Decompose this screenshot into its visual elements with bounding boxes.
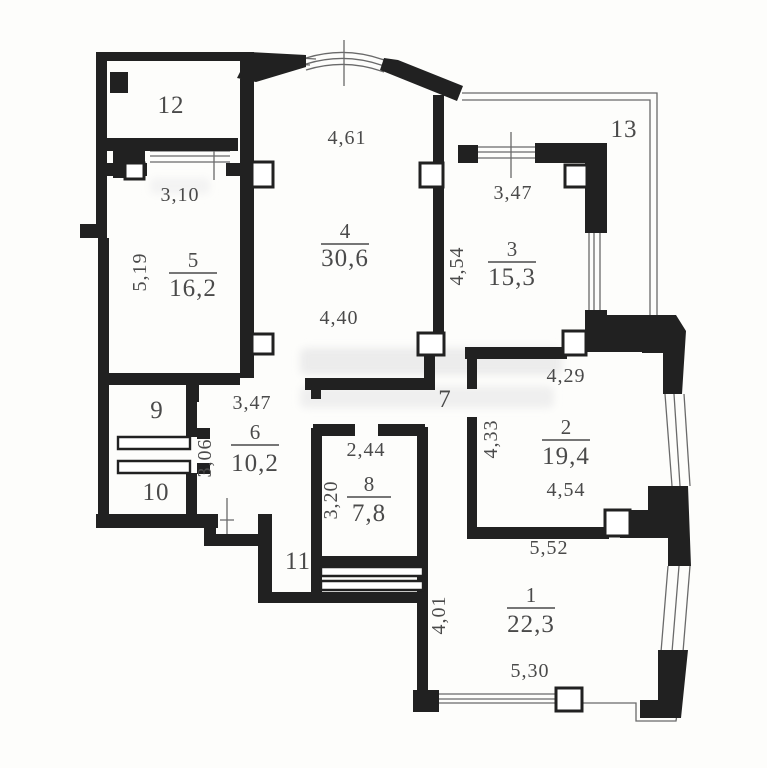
walls-path (80, 52, 691, 718)
room-8-area: 7,8 (352, 500, 386, 527)
room-4-number: 4 (340, 219, 351, 243)
dim-4-01: 4,01 (428, 596, 450, 635)
room-6-area: 10,2 (231, 450, 279, 477)
room-11-label: 11 (285, 548, 311, 575)
room-4-area: 30,6 (321, 245, 369, 272)
scanned-floor-plan-page: 4 30,6 5 16,2 3 15,3 2 19,4 1 22,3 6 10,… (0, 0, 767, 768)
room-6-number: 6 (250, 420, 261, 444)
dim-4-29: 4,29 (547, 365, 586, 387)
floor-plan-drawing: 4 30,6 5 16,2 3 15,3 2 19,4 1 22,3 6 10,… (0, 0, 767, 768)
dim-4-61: 4,61 (328, 127, 367, 149)
room-1-area: 22,3 (507, 611, 555, 638)
dim-4-40: 4,40 (320, 307, 359, 329)
dim-4-54-mid: 4,54 (446, 247, 468, 286)
dim-5-52: 5,52 (530, 537, 569, 559)
dim-3-06: 3,06 (194, 439, 216, 478)
dim-3-20: 3,20 (320, 481, 342, 520)
room-10-label: 10 (143, 479, 170, 506)
room-5-area: 16,2 (169, 275, 217, 302)
room-13-label: 13 (611, 116, 638, 143)
room-8-number: 8 (364, 472, 375, 496)
walls (80, 52, 691, 718)
room-1-number: 1 (526, 583, 537, 607)
dim-2-44: 2,44 (347, 439, 386, 461)
room-9-label: 9 (150, 397, 164, 424)
room-3-area: 15,3 (488, 264, 536, 291)
dim-5-30: 5,30 (511, 660, 550, 682)
room-2-area: 19,4 (542, 443, 590, 470)
dim-5-19: 5,19 (129, 253, 151, 292)
dim-3-47-mid: 3,47 (233, 392, 272, 414)
room-3-number: 3 (507, 237, 518, 261)
dim-4-33: 4,33 (480, 420, 502, 459)
dim-4-54-low: 4,54 (547, 479, 586, 501)
room-5-number: 5 (188, 248, 199, 272)
room-2-number: 2 (561, 415, 572, 439)
dim-3-47-top: 3,47 (494, 182, 533, 204)
room-7-label: 7 (438, 386, 452, 413)
dim-3-10: 3,10 (161, 184, 200, 206)
room-12-label: 12 (158, 92, 185, 119)
